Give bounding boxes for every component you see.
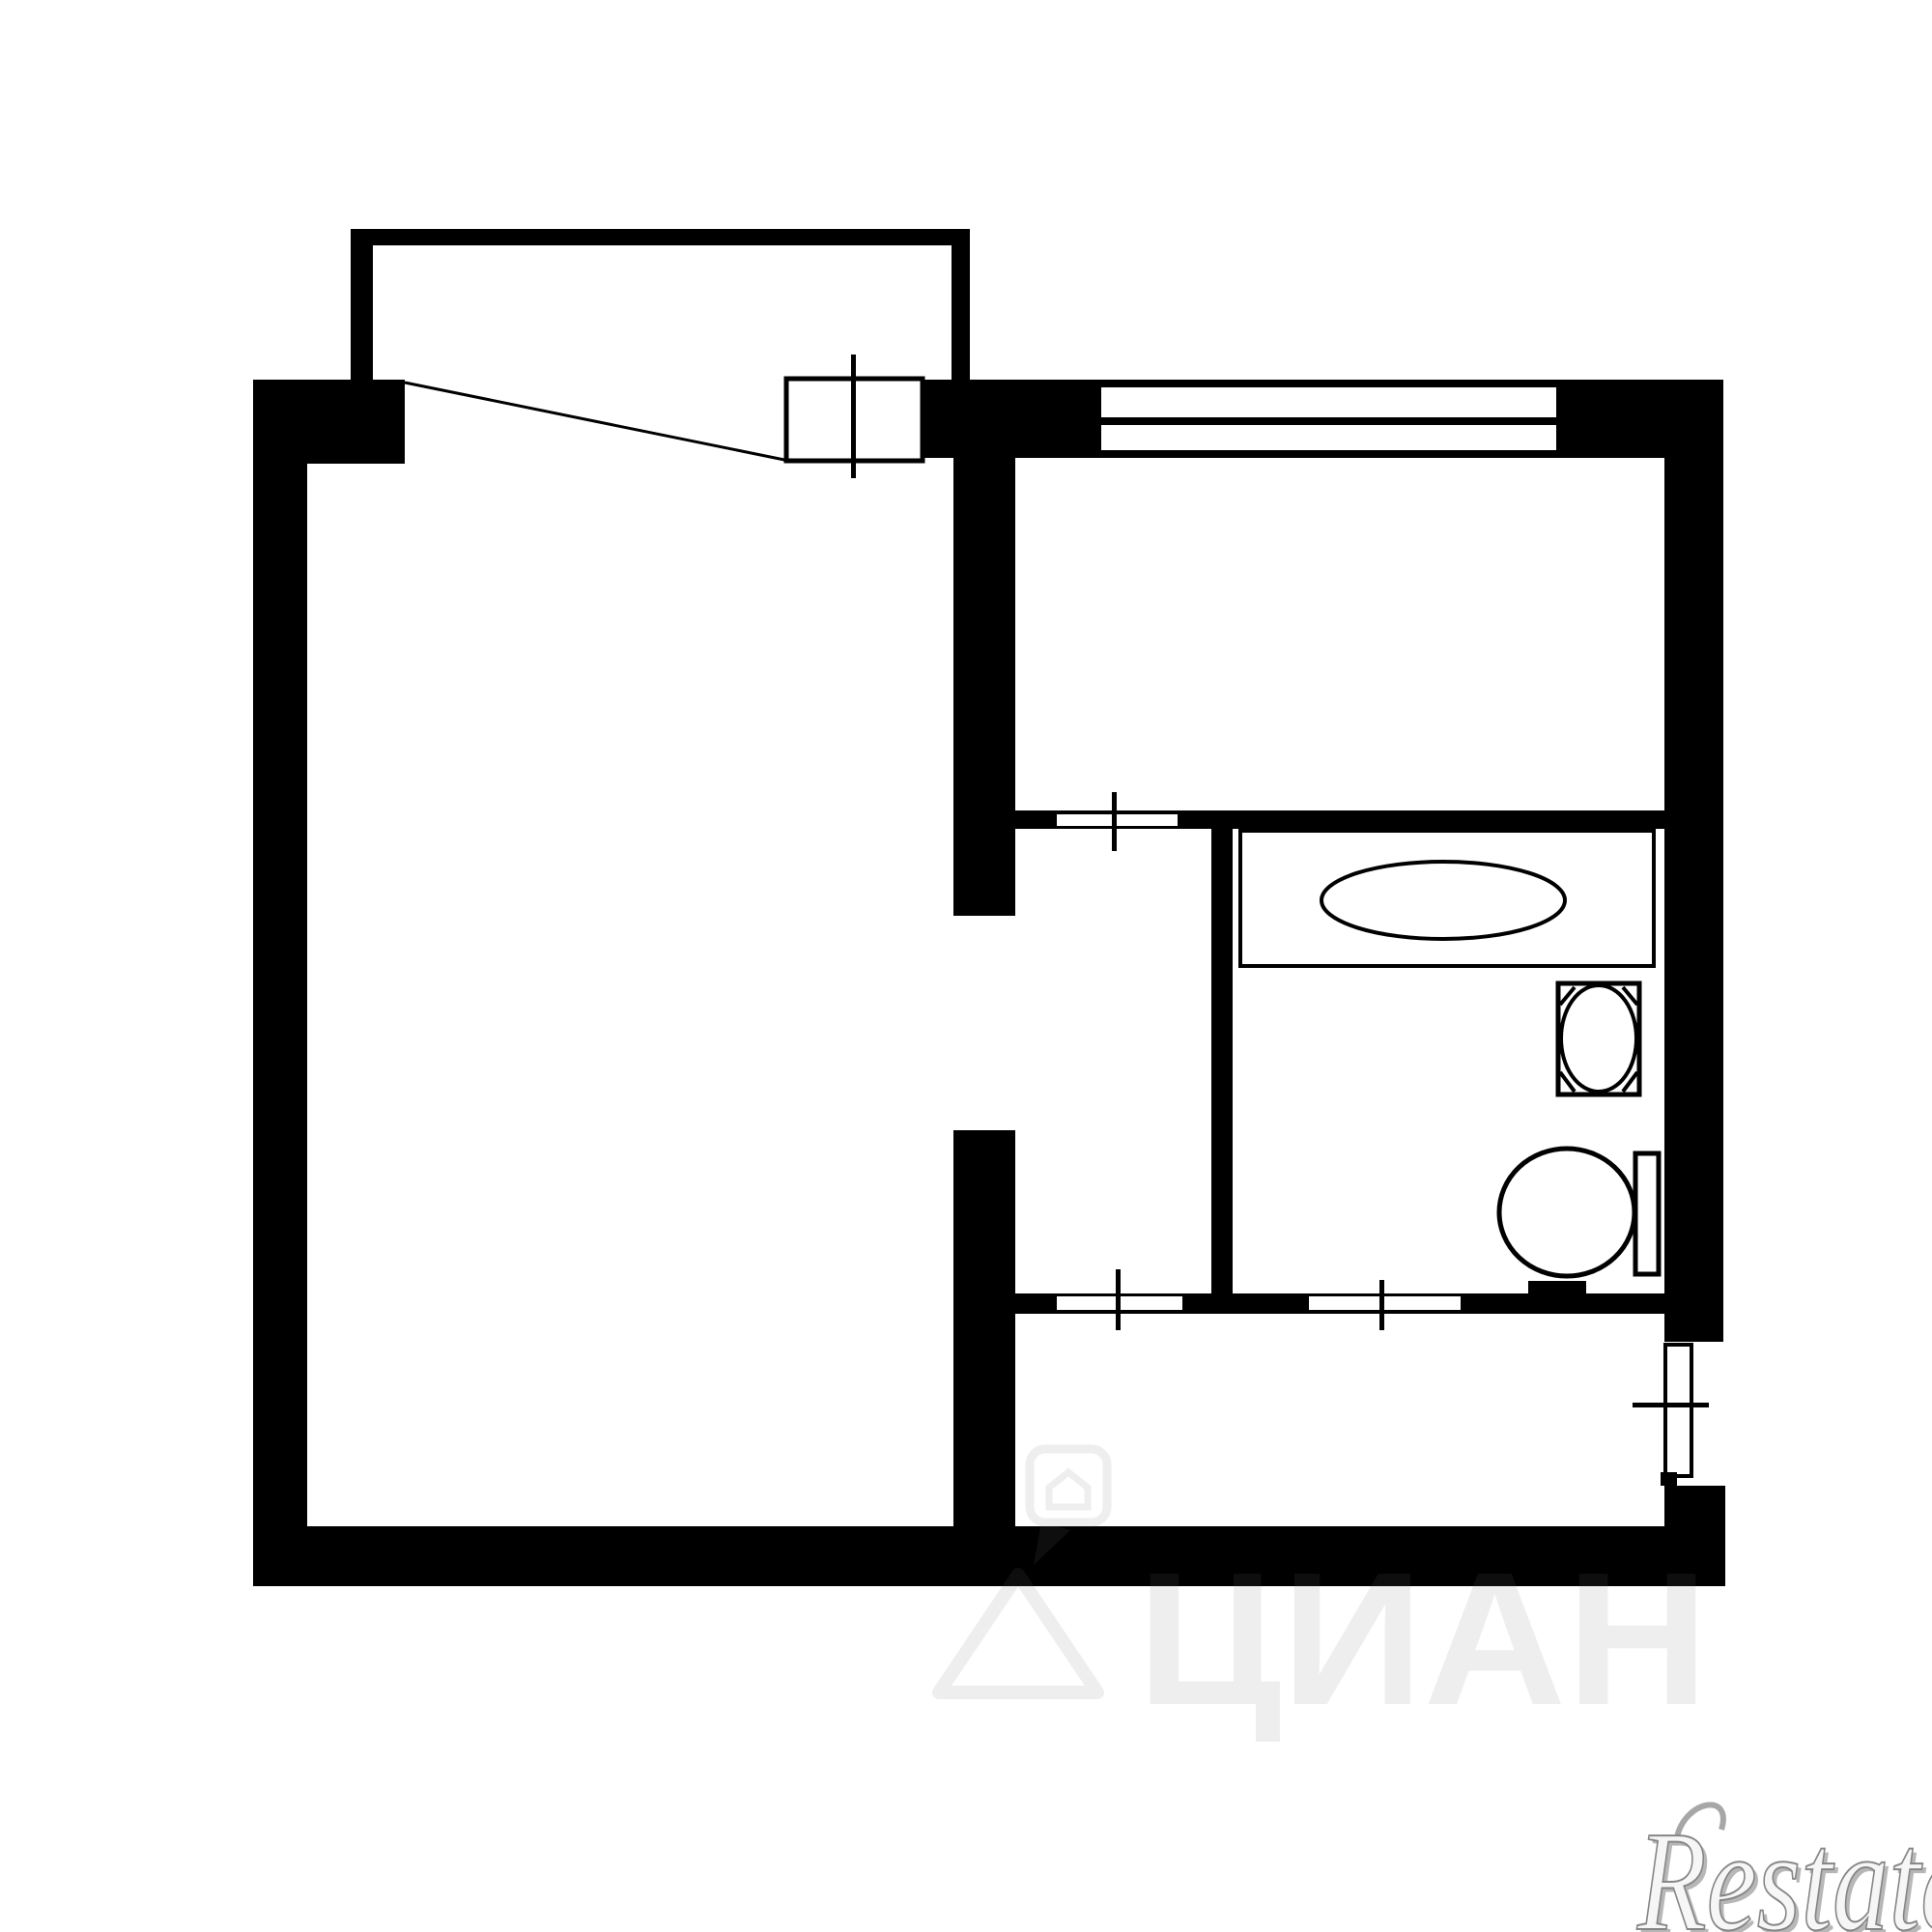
svg-text:Restate: Restate (1636, 1803, 1932, 1932)
svg-text:ЦИАН: ЦИАН (1137, 1533, 1709, 1745)
